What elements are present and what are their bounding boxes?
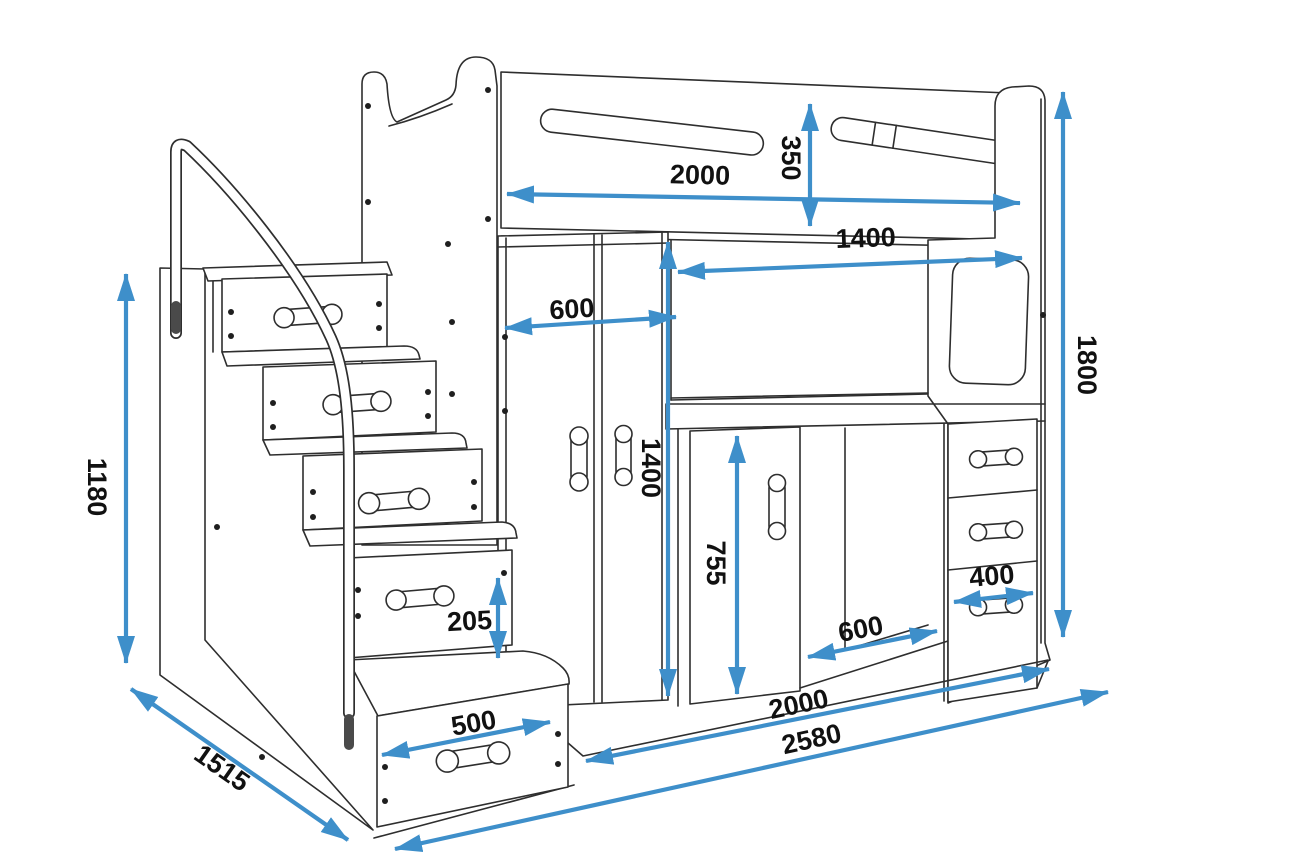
dim-label-drawer-unit-width: 400 [968, 559, 1016, 593]
dim-label-under-desk-clearance: 755 [701, 540, 731, 585]
dim-label-stairs-height: 1180 [82, 458, 112, 517]
desk-cabinet-handle [769, 475, 786, 540]
handrail-foot-bottom [344, 714, 354, 750]
furniture-line-art [160, 57, 1050, 838]
stair-handle-2 [322, 391, 391, 416]
dim-label-wardrobe-height: 1400 [636, 438, 666, 498]
stair-handle-1 [273, 304, 342, 329]
dim-label-wardrobe-width: 600 [548, 293, 595, 326]
dim-label-total-height: 1800 [1072, 335, 1102, 395]
dim-label-total-depth: 1515 [189, 738, 255, 797]
desk-drawer-handle-2 [969, 521, 1023, 542]
step-drawer-3 [303, 449, 482, 530]
dim-total-height: 1800 [1063, 92, 1102, 637]
wardrobe-handle-right [615, 426, 632, 486]
dim-stairs-height: 1180 [82, 274, 126, 663]
drawing-canvas: 2000 350 1400 600 1400 1800 1180 205 [0, 0, 1300, 866]
dim-label-guardrail-height: 350 [776, 135, 806, 180]
desk-drawer-handle-1 [969, 448, 1023, 469]
wardrobe-handle-left [570, 427, 588, 491]
loft-bed-technical-drawing: 2000 350 1400 600 1400 1800 1180 205 [0, 0, 1300, 866]
handrail-foot-top [171, 301, 181, 334]
dim-label-bed-length-top: 2000 [670, 159, 731, 191]
dim-label-step-rise: 205 [446, 605, 493, 637]
dim-label-desk-niche-width: 1400 [835, 222, 896, 254]
